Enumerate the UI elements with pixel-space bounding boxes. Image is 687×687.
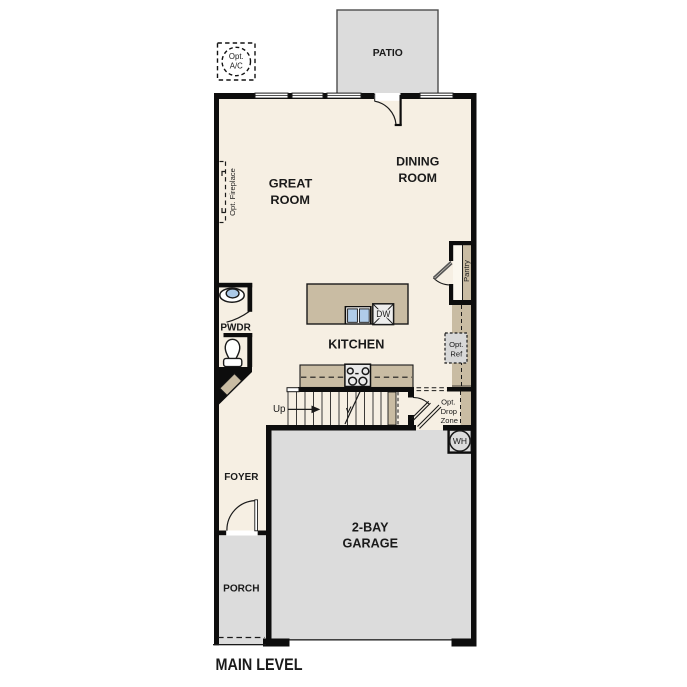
svg-text:KITCHEN: KITCHEN	[328, 338, 384, 352]
svg-text:PWDR: PWDR	[220, 323, 251, 334]
svg-text:Pantry: Pantry	[462, 260, 471, 282]
svg-text:FOYER: FOYER	[224, 472, 259, 483]
svg-text:Opt.: Opt.	[229, 52, 244, 61]
svg-text:PATIO: PATIO	[373, 48, 403, 59]
svg-text:Drop: Drop	[441, 407, 457, 416]
svg-text:MAIN LEVEL: MAIN LEVEL	[216, 656, 303, 674]
svg-text:GARAGE: GARAGE	[343, 537, 399, 551]
svg-text:WH: WH	[453, 436, 467, 446]
svg-text:Zone: Zone	[441, 416, 458, 425]
svg-text:Opt.: Opt.	[449, 340, 463, 349]
svg-text:A/C: A/C	[230, 62, 243, 71]
svg-text:Up: Up	[273, 404, 286, 415]
svg-text:DW: DW	[376, 309, 390, 319]
svg-text:PORCH: PORCH	[223, 584, 259, 595]
svg-text:ROOM: ROOM	[398, 171, 437, 185]
svg-text:ROOM: ROOM	[270, 193, 310, 207]
svg-text:2-BAY: 2-BAY	[352, 521, 389, 535]
svg-text:DINING: DINING	[396, 155, 439, 169]
svg-text:Opt.: Opt.	[441, 397, 455, 406]
svg-text:Opt. Fireplace: Opt. Fireplace	[228, 168, 237, 216]
svg-text:Ref: Ref	[450, 349, 463, 358]
svg-text:GREAT: GREAT	[269, 177, 313, 191]
